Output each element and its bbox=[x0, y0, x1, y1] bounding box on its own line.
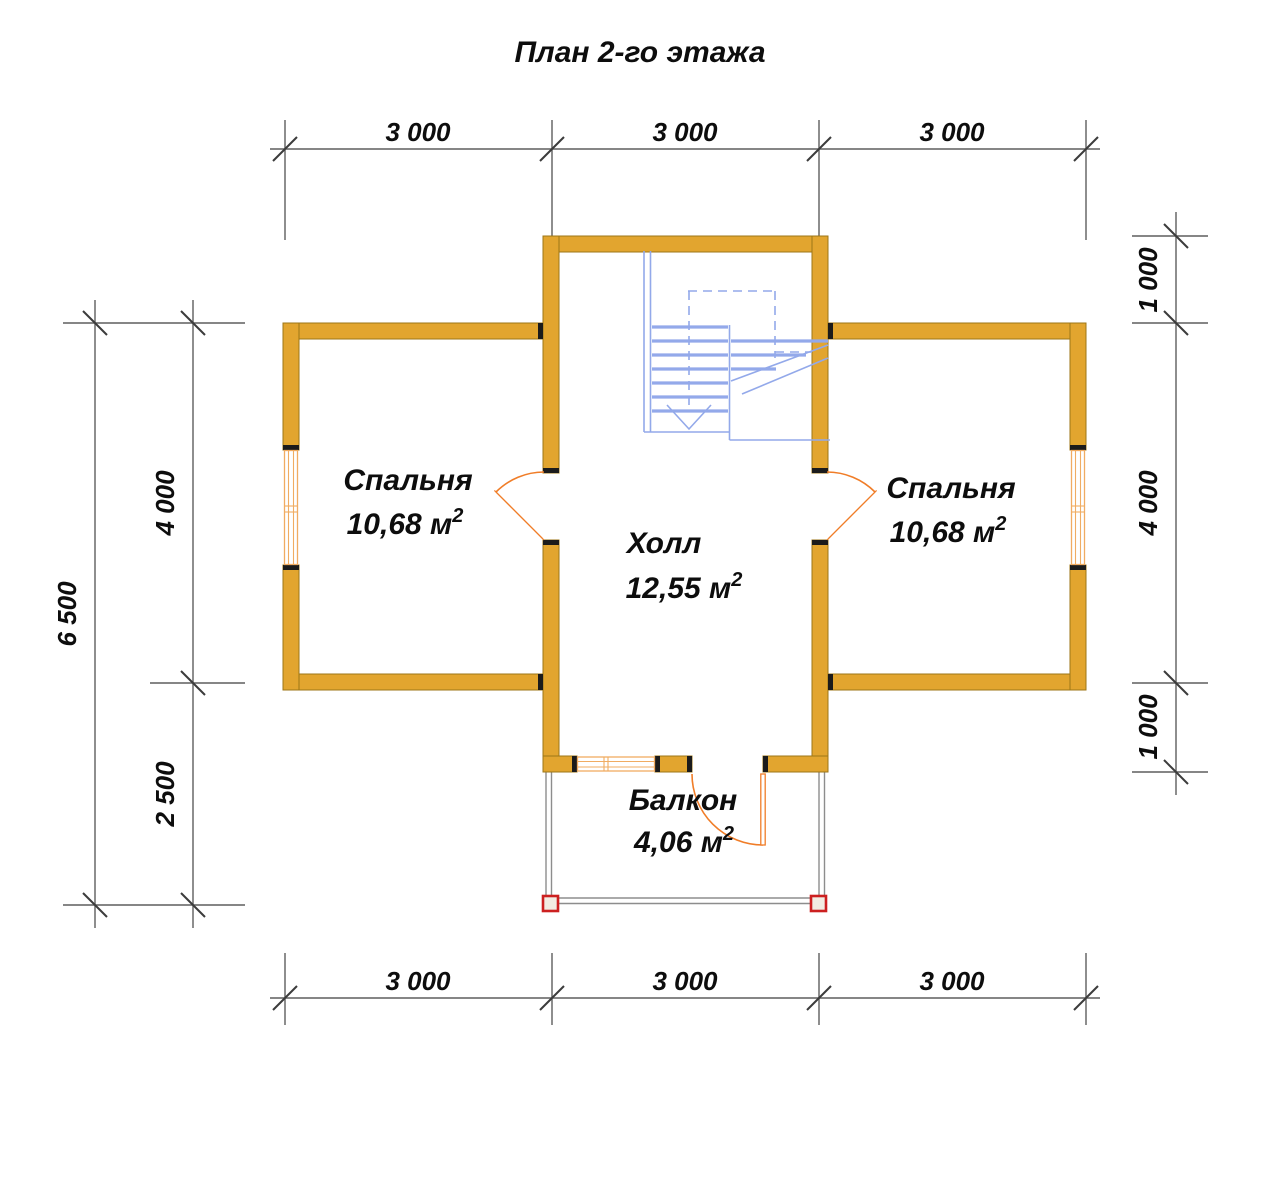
room-name-text: Балкон bbox=[629, 784, 738, 817]
svg-text:Балкон: Балкон bbox=[629, 784, 738, 817]
room-area-text: 4,06 м bbox=[633, 826, 723, 859]
dim-top-2: 3 000 bbox=[652, 117, 718, 147]
room-area-text: 10,68 м bbox=[347, 508, 453, 541]
door-left-bedroom bbox=[494, 472, 544, 540]
svg-text:4,06 м2: 4,06 м2 bbox=[633, 823, 734, 859]
room-area-text: 10,68 м bbox=[890, 516, 996, 549]
room-label-hall: Холл 12,55 м2 bbox=[625, 527, 743, 605]
svg-text:10,68 м2: 10,68 м2 bbox=[347, 505, 464, 541]
room-area-sup: 2 bbox=[994, 513, 1006, 535]
room-label-bedroom-right: Спальня 10,68 м2 bbox=[886, 472, 1016, 549]
dim-left-total: 6 500 bbox=[52, 581, 82, 647]
dim-left-upper: 4 000 bbox=[150, 470, 180, 537]
room-area-sup: 2 bbox=[722, 823, 734, 845]
floor-plan-canvas: План 2-го этажа 3 000 3 000 3 000 3 000 … bbox=[0, 0, 1280, 1189]
room-name-text: Спальня bbox=[886, 472, 1016, 505]
floor-plan-page: План 2-го этажа 3 000 3 000 3 000 3 000 … bbox=[0, 0, 1280, 1189]
room-label-balcony: Балкон 4,06 м2 bbox=[629, 784, 738, 859]
svg-text:12,55 м2: 12,55 м2 bbox=[626, 569, 743, 605]
dim-top-3: 3 000 bbox=[919, 117, 985, 147]
svg-text:Холл: Холл bbox=[625, 527, 702, 560]
window-left bbox=[285, 451, 298, 565]
room-area-sup: 2 bbox=[730, 569, 742, 591]
svg-text:Спальня: Спальня bbox=[886, 472, 1016, 505]
plan-title: План 2-го этажа bbox=[514, 36, 765, 69]
balcony-post-right bbox=[811, 896, 826, 911]
door-right-bedroom bbox=[827, 472, 877, 540]
staircase bbox=[644, 251, 830, 440]
balcony-post-left bbox=[543, 896, 558, 911]
room-area-sup: 2 bbox=[451, 505, 463, 527]
dim-bottom-3: 3 000 bbox=[919, 966, 985, 996]
dimension-chain-left: 6 500 4 000 2 500 bbox=[52, 300, 245, 928]
dim-bottom-1: 3 000 bbox=[385, 966, 451, 996]
room-name-text: Спальня bbox=[343, 464, 473, 497]
dim-bottom-2: 3 000 bbox=[652, 966, 718, 996]
room-name-text: Холл bbox=[625, 527, 702, 560]
dimension-chain-top: 3 000 3 000 3 000 bbox=[270, 117, 1100, 240]
room-area-text: 12,55 м bbox=[626, 572, 732, 605]
window-right bbox=[1072, 451, 1085, 565]
dim-right-lower: 1 000 bbox=[1133, 694, 1163, 760]
dimension-chain-bottom: 3 000 3 000 3 000 bbox=[270, 953, 1100, 1025]
dimension-chain-right: 1 000 4 000 1 000 bbox=[1132, 212, 1208, 795]
dim-right-upper: 1 000 bbox=[1133, 247, 1163, 313]
room-label-bedroom-left: Спальня 10,68 м2 bbox=[343, 464, 473, 541]
dim-top-1: 3 000 bbox=[385, 117, 451, 147]
window-balcony-wall bbox=[578, 757, 655, 771]
dim-left-lower: 2 500 bbox=[150, 761, 180, 828]
svg-text:Спальня: Спальня bbox=[343, 464, 473, 497]
svg-text:10,68 м2: 10,68 м2 bbox=[890, 513, 1007, 549]
dim-right-middle: 4 000 bbox=[1133, 470, 1163, 537]
stair-arrow-head bbox=[667, 405, 711, 429]
